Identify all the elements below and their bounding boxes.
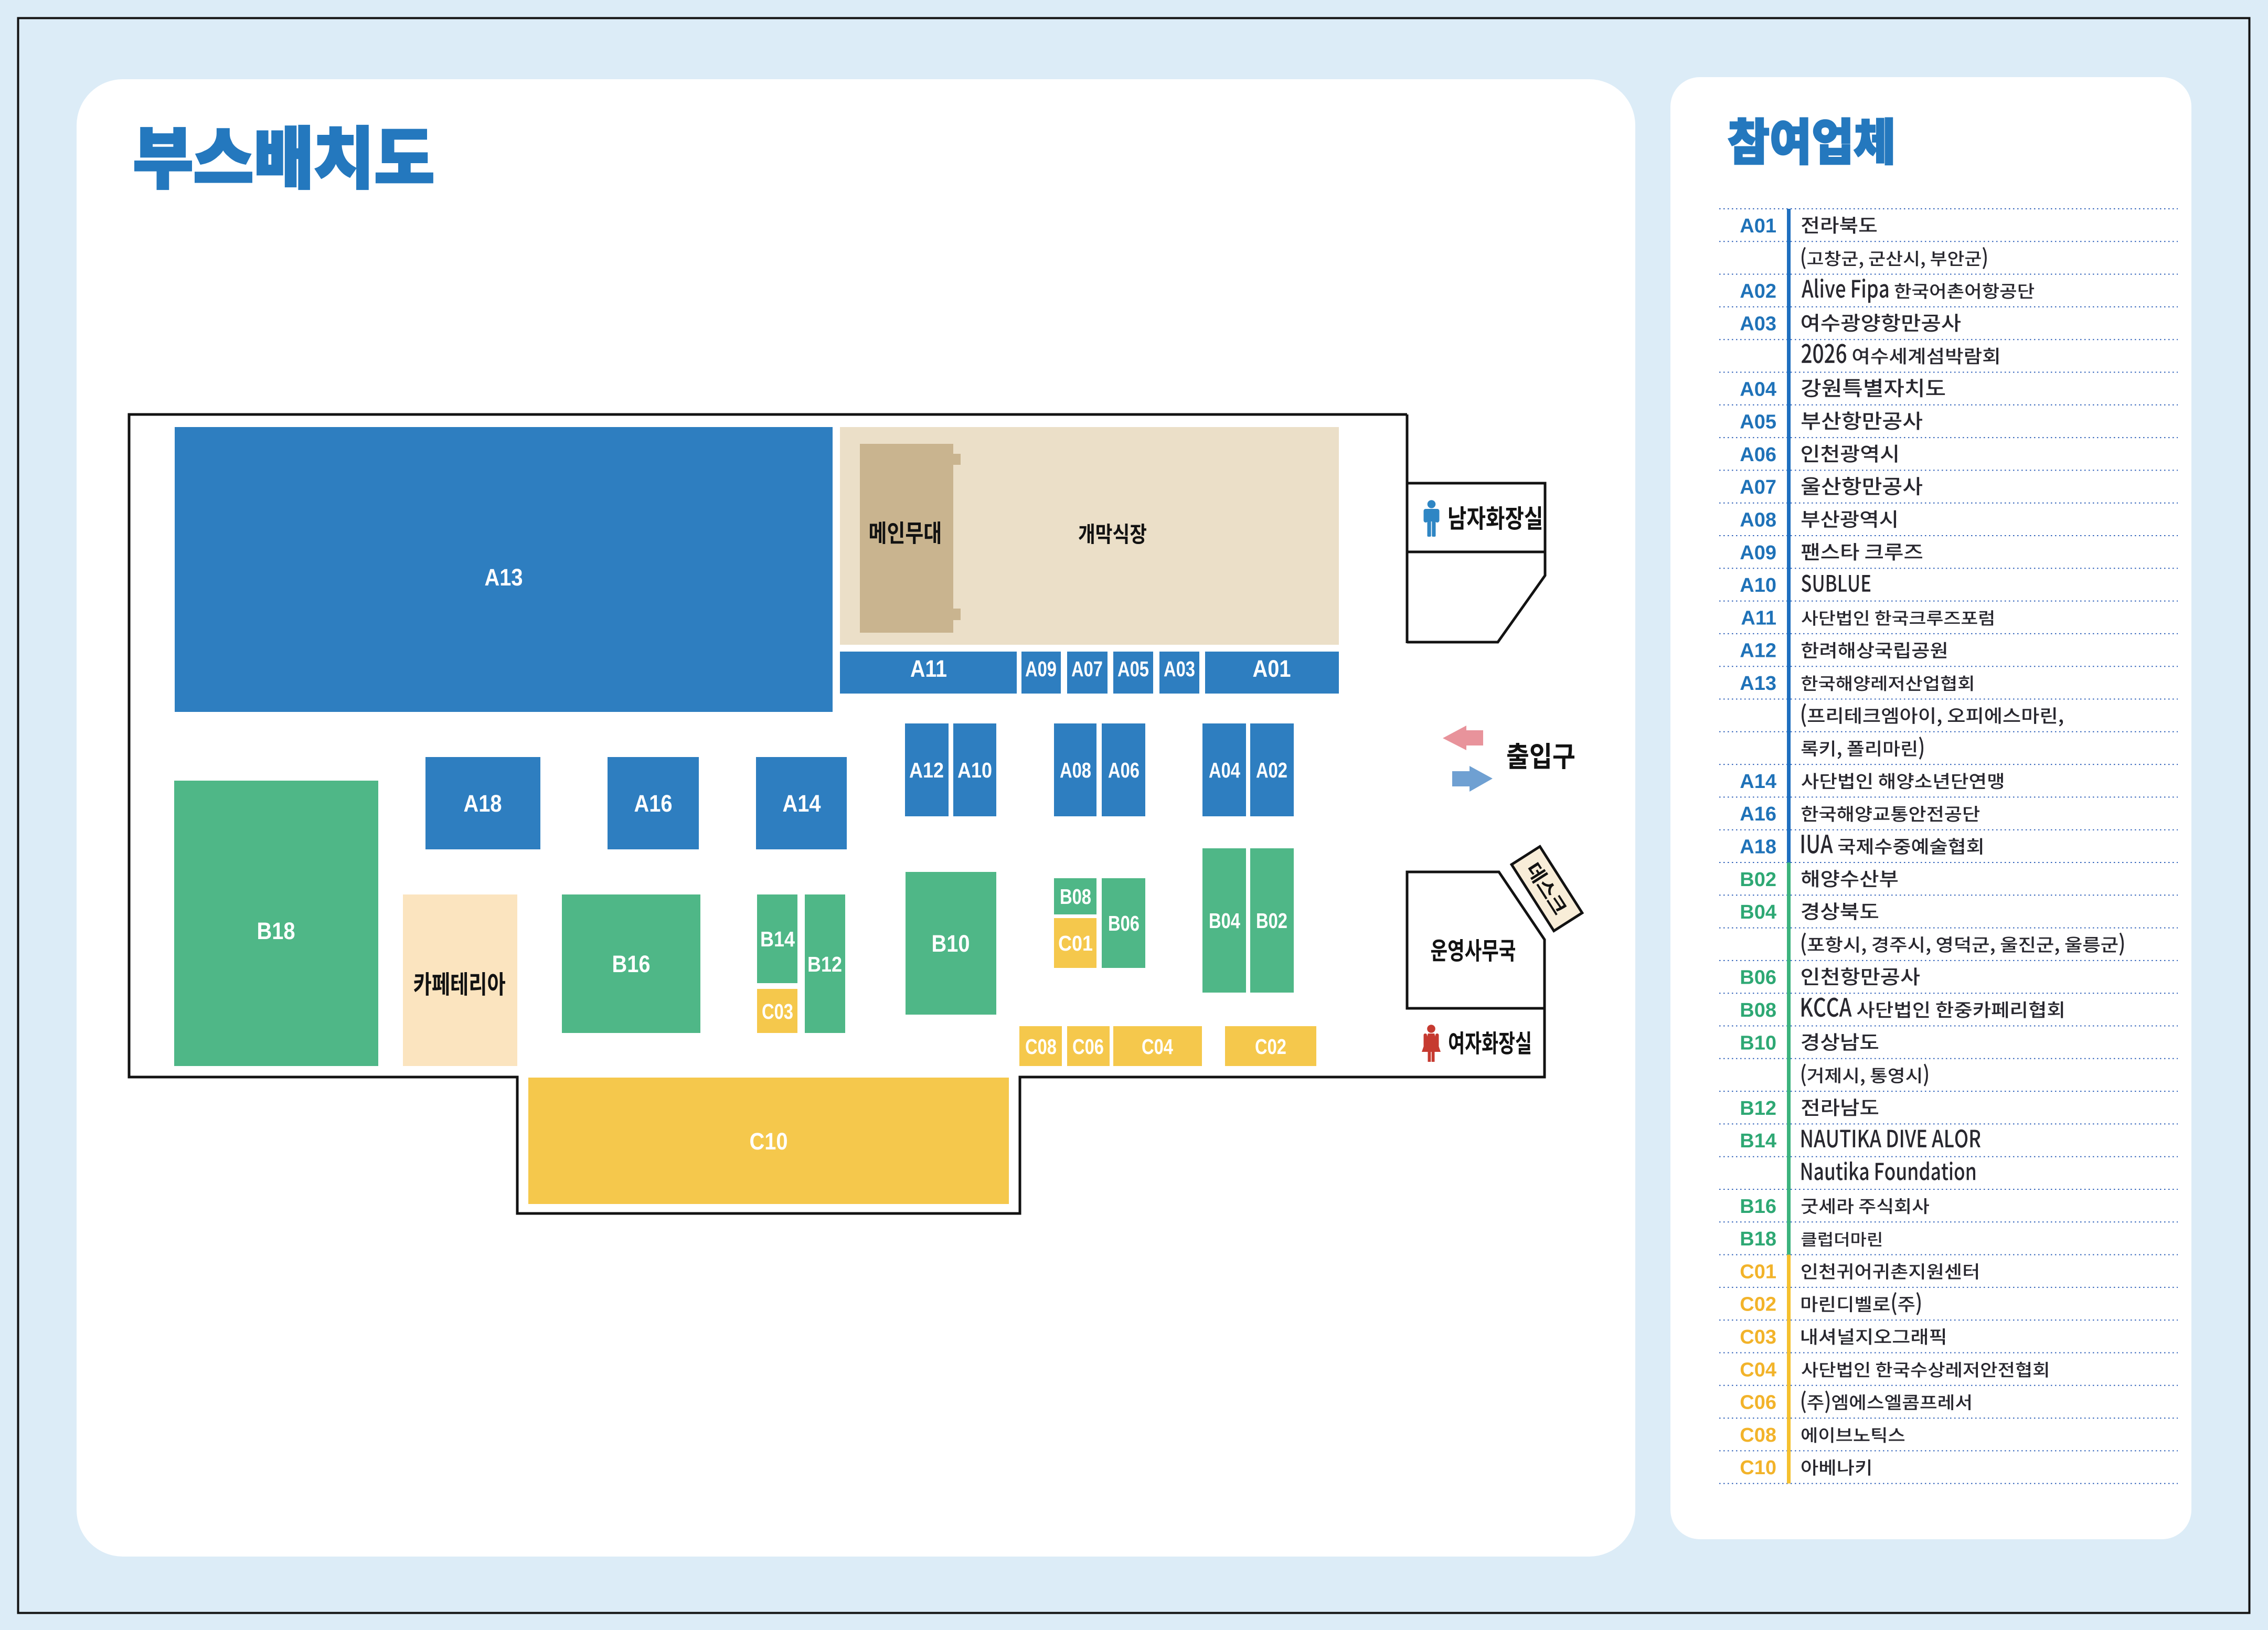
svg-text:A09: A09: [1740, 542, 1776, 564]
svg-text:A04: A04: [1740, 378, 1776, 400]
svg-text:B16: B16: [612, 951, 651, 977]
svg-text:C10: C10: [750, 1128, 788, 1155]
svg-text:A02: A02: [1256, 758, 1287, 782]
svg-text:A03: A03: [1740, 313, 1776, 335]
svg-text:A06: A06: [1108, 758, 1140, 782]
svg-text:A13: A13: [485, 564, 523, 591]
svg-text:A13: A13: [1740, 673, 1776, 695]
svg-text:C03: C03: [762, 999, 793, 1024]
svg-text:C04: C04: [1142, 1035, 1173, 1059]
svg-text:A03: A03: [1164, 657, 1195, 681]
svg-text:A05: A05: [1117, 657, 1149, 681]
svg-text:C02: C02: [1255, 1035, 1286, 1059]
svg-text:A07: A07: [1071, 657, 1103, 681]
svg-text:C02: C02: [1740, 1294, 1776, 1316]
svg-text:B14: B14: [1740, 1130, 1776, 1152]
svg-text:B10: B10: [1740, 1032, 1776, 1054]
svg-text:A11: A11: [910, 655, 947, 682]
svg-text:C10: C10: [1740, 1457, 1776, 1479]
svg-text:B04: B04: [1209, 909, 1240, 933]
svg-text:C03: C03: [1740, 1326, 1776, 1348]
svg-text:B12: B12: [1740, 1098, 1776, 1120]
svg-text:B04: B04: [1740, 901, 1776, 923]
svg-text:C06: C06: [1740, 1392, 1776, 1414]
svg-text:A05: A05: [1740, 411, 1776, 433]
svg-text:A16: A16: [634, 790, 673, 817]
svg-text:C01: C01: [1058, 931, 1093, 955]
svg-text:A01: A01: [1740, 215, 1776, 237]
svg-text:C04: C04: [1740, 1359, 1776, 1381]
svg-text:A18: A18: [1740, 836, 1776, 858]
svg-text:B10: B10: [932, 930, 970, 957]
svg-text:A10: A10: [1740, 574, 1776, 596]
svg-text:B16: B16: [1740, 1196, 1776, 1218]
svg-text:B08: B08: [1740, 999, 1776, 1021]
svg-text:C01: C01: [1740, 1261, 1776, 1283]
svg-text:B12: B12: [807, 952, 842, 976]
svg-text:A04: A04: [1209, 758, 1240, 782]
svg-text:A08: A08: [1060, 758, 1091, 782]
svg-text:B18: B18: [257, 918, 295, 944]
svg-text:A09: A09: [1025, 657, 1057, 681]
svg-text:B02: B02: [1740, 869, 1776, 891]
svg-text:B06: B06: [1740, 967, 1776, 989]
svg-text:A11: A11: [1741, 607, 1776, 629]
svg-text:B02: B02: [1256, 909, 1287, 933]
svg-text:C08: C08: [1740, 1424, 1776, 1446]
svg-text:A14: A14: [1740, 771, 1776, 793]
svg-text:C06: C06: [1072, 1035, 1104, 1059]
svg-text:B06: B06: [1108, 911, 1140, 935]
svg-text:A02: A02: [1740, 280, 1776, 302]
svg-text:A07: A07: [1740, 476, 1776, 498]
svg-text:B14: B14: [760, 927, 795, 951]
svg-text:A08: A08: [1740, 509, 1776, 531]
svg-text:A16: A16: [1740, 803, 1776, 825]
svg-text:A10: A10: [957, 758, 992, 782]
svg-text:A18: A18: [464, 790, 502, 817]
svg-text:B18: B18: [1740, 1228, 1776, 1250]
svg-text:C08: C08: [1025, 1035, 1057, 1059]
svg-text:A12: A12: [1740, 640, 1776, 662]
svg-text:A06: A06: [1740, 444, 1776, 466]
svg-text:A14: A14: [783, 790, 821, 817]
svg-text:B08: B08: [1060, 885, 1091, 909]
svg-text:A12: A12: [909, 758, 944, 782]
svg-text:A01: A01: [1253, 655, 1291, 682]
